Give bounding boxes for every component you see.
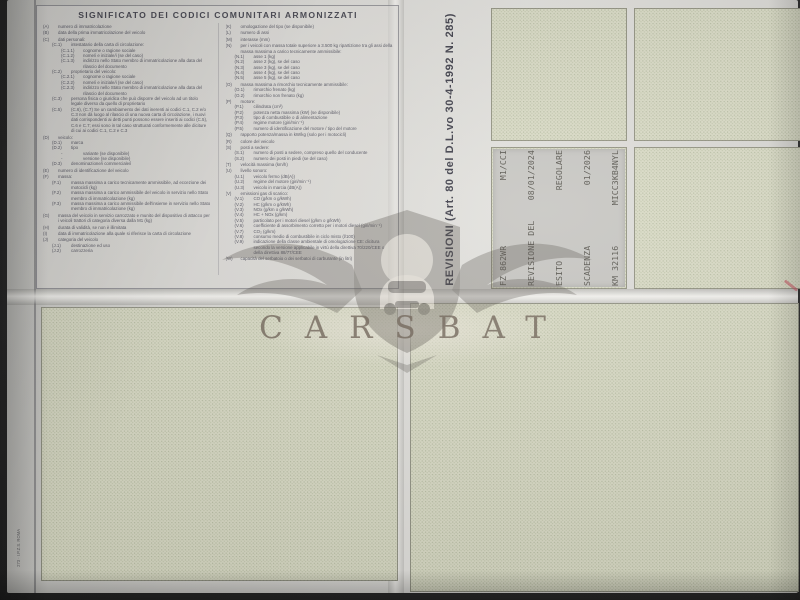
- code-line: (H)durata di validità, se non è illimita…: [43, 225, 211, 230]
- revisions-label: REVISIONI (Art. 80 del D.L.vo 30-4-1992 …: [444, 13, 456, 286]
- notes-box-left: [41, 307, 398, 581]
- code-line: (G)massa del veicolo in servizio carrozz…: [43, 213, 211, 224]
- code-line: (M)interasse (mm): [226, 37, 394, 42]
- revision-box-empty-2: [634, 8, 800, 141]
- revisions-label-band: REVISIONI (Art. 80 del D.L.vo 30-4-1992 …: [427, 10, 473, 288]
- stamp-line: REVISIONE DEL08/01/2024: [526, 150, 536, 286]
- code-line: (F.2)massa massima a carico ammissibile …: [52, 190, 211, 201]
- print-code: 273 · I.P.Z.S. ROMA: [13, 505, 24, 590]
- code-line: (C.3)persona fisica o giuridica che può …: [52, 96, 211, 107]
- code-line: (J.2)carrozzeria: [52, 248, 211, 253]
- revision-stamp: FZ 862WRM1/CCIREVISIONE DEL08/01/2024ESI…: [493, 149, 625, 287]
- code-line: (T)velocità massima (km/h): [226, 162, 394, 167]
- code-line: (P.5)numero di identificazione del motor…: [235, 126, 394, 131]
- codes-panel: SIGNIFICATO DEI CODICI COMUNITARI ARMONI…: [36, 5, 399, 289]
- notes-box-right: [410, 303, 799, 592]
- code-line: (Q)rapporto potenza/massa in kW/kg (solo…: [226, 132, 394, 137]
- codes-title: SIGNIFICATO DEI CODICI COMUNITARI ARMONI…: [43, 10, 393, 20]
- code-line: (W)capacità del serbatoio o dei serbatoi…: [226, 256, 394, 261]
- code-line: (F.1)massa massima a carico tecnicamente…: [52, 180, 211, 191]
- code-line: (D.3)denominazione/i commerciale/i: [52, 161, 211, 166]
- code-line: (L)numero di assi: [226, 30, 394, 35]
- code-line: (S.2)numero dei posti in piedi (se del c…: [235, 156, 394, 161]
- codes-column-right: (K)omologazione del tipo (se disponibile…: [226, 23, 394, 275]
- stamp-line: FZ 862WRM1/CCI: [498, 150, 508, 286]
- revision-box-empty-1: [491, 8, 627, 141]
- codes-column-left: (A)numero di immatricolazione(B)data del…: [43, 23, 211, 275]
- code-line: (C.2.3)indirizzo nello Stato membro di i…: [61, 85, 211, 96]
- stamp-line: ESITOREGOLARE: [554, 150, 564, 286]
- code-line: (O.2)rimorchio non frenato (kg): [235, 93, 394, 98]
- stamp-line: KM 32116MICC3KB4NYL: [610, 150, 620, 286]
- code-line: (C.1.3)indirizzo nello Stato membro di i…: [61, 58, 211, 69]
- code-line: (N.5)asse 5 (kg), se del caso: [235, 75, 394, 80]
- code-line: (K)omologazione del tipo (se disponibile…: [226, 24, 394, 29]
- code-line: (F.3)massa massima a carico ammissibile …: [52, 201, 211, 212]
- code-line: (R)colore del veicolo: [226, 139, 394, 144]
- revision-box-empty-3: [634, 147, 800, 289]
- code-line: (V.9)indicazione della classe ambientale…: [235, 239, 394, 255]
- code-line: (N)per i veicoli con massa totale superi…: [226, 43, 394, 54]
- code-line: (A)numero di immatricolazione: [43, 24, 211, 29]
- revision-box-stamp: FZ 862WRM1/CCIREVISIONE DEL08/01/2024ESI…: [491, 147, 627, 289]
- code-line: (U.3)veicolo in marcia (dB(A)): [235, 185, 394, 190]
- document-sheet: SIGNIFICATO DEI CODICI COMUNITARI ARMONI…: [7, 0, 798, 593]
- stamp-line: SCADENZA01/2026: [582, 150, 592, 286]
- code-line: (E)numero di identificazione del veicolo: [43, 168, 211, 173]
- column-divider: [218, 23, 219, 275]
- code-line: (I)data di immatricolazione alla quale s…: [43, 231, 211, 236]
- code-line: (C.5)(C.6), (C.7) Se un cambiamento dei …: [52, 107, 211, 134]
- code-line: (B)data della prima immatricolazione del…: [43, 30, 211, 35]
